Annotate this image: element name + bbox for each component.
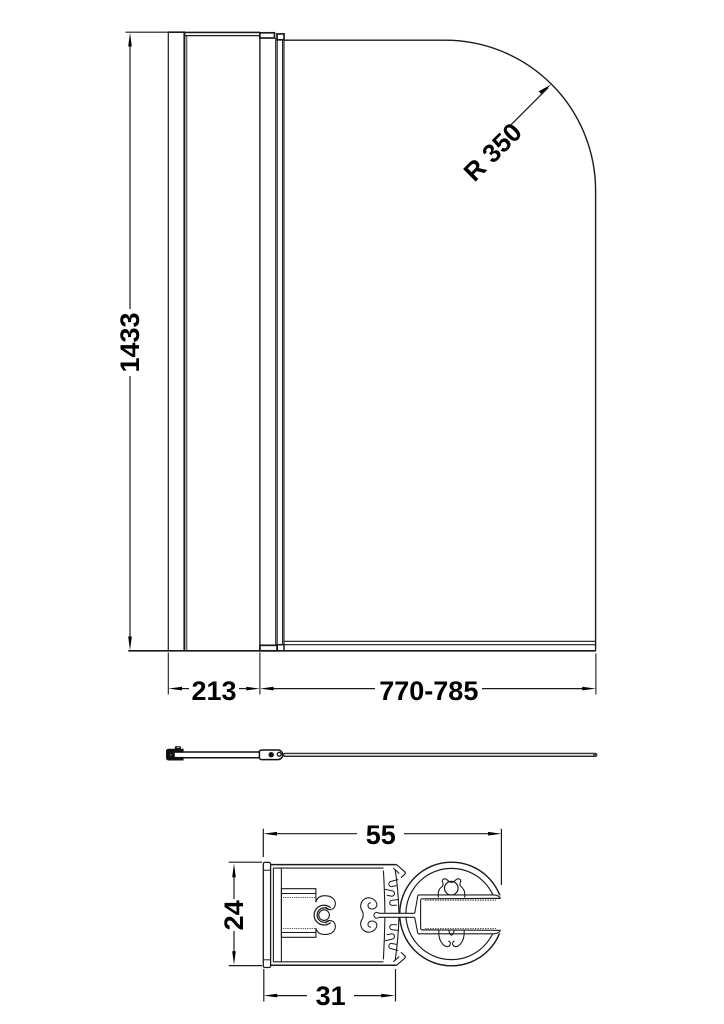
svg-text:24: 24 [219, 900, 249, 930]
svg-text:213: 213 [191, 676, 236, 706]
svg-text:55: 55 [366, 820, 396, 850]
svg-text:770-785: 770-785 [379, 676, 478, 706]
svg-text:1433: 1433 [115, 312, 145, 372]
svg-text:31: 31 [316, 981, 346, 1011]
